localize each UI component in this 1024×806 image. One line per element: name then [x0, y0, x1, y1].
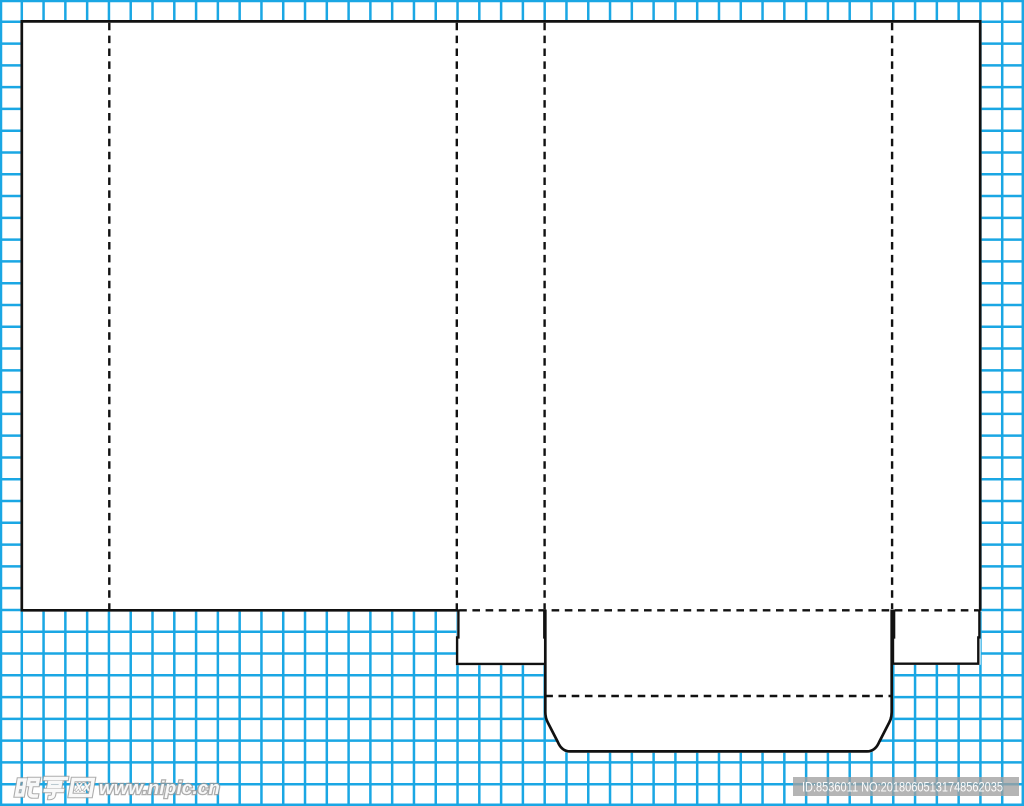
svg-text:ID:8536011 NO:2018060513174856: ID:8536011 NO:20180605131748562035: [802, 779, 1003, 795]
svg-text:www.nipic.cn: www.nipic.cn: [99, 777, 220, 798]
